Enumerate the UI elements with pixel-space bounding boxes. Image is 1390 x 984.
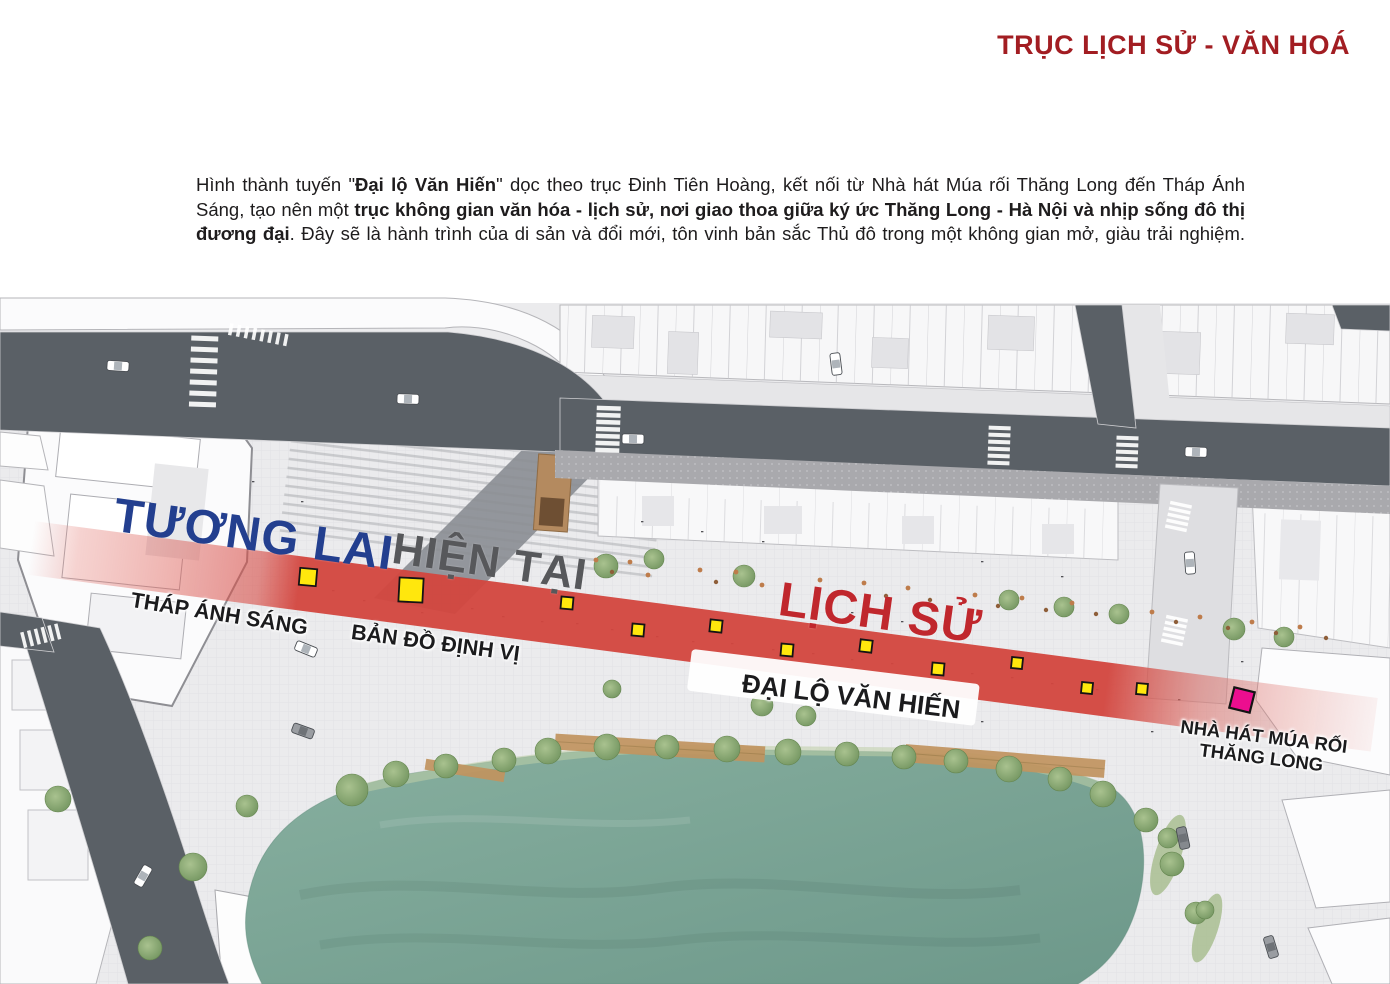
axis-node-marker	[780, 643, 793, 656]
axis-node-marker	[1011, 657, 1023, 669]
axis-node-marker	[1081, 682, 1093, 694]
building	[0, 432, 48, 470]
axis-node-marker	[1136, 683, 1148, 695]
map-canvas	[0, 0, 1390, 984]
axis-node-marker	[859, 639, 872, 652]
theater-marker	[1229, 687, 1254, 712]
masterplan-map: TƯƠNG LAI HIỆN TẠI LỊCH SỬ THÁP ÁNH SÁNG…	[0, 0, 1390, 984]
axis-node-marker	[631, 623, 644, 636]
axis-node-marker	[709, 619, 722, 632]
axis-node-marker	[398, 577, 423, 602]
axis-node-marker	[931, 662, 944, 675]
slide: TRỤC LỊCH SỬ - VĂN HOÁ Hình thành tuyến …	[0, 0, 1390, 984]
